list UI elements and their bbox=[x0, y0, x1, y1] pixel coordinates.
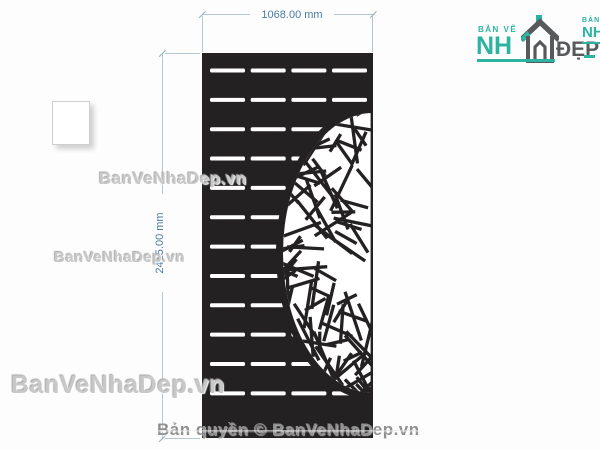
gate-panel-drawing bbox=[202, 53, 373, 438]
copyright-watermark: Bản quyền © BanVeNhaDep.vn bbox=[157, 420, 420, 440]
logo-main-text: NH bbox=[582, 24, 600, 41]
left-dimension-extension-top bbox=[165, 53, 200, 54]
logo-underline bbox=[584, 55, 595, 58]
drawing-preview-page: 1068.00 mm 2415.00 mm BanVeNhaDep.vn Ban… bbox=[0, 0, 600, 450]
height-dimension-label: 2415.00 mm bbox=[153, 194, 167, 292]
house-icon bbox=[521, 14, 559, 64]
logo-underline bbox=[582, 42, 600, 44]
top-dimension-extension-right bbox=[372, 16, 373, 52]
banvenhadep-logo-partial: BẢN V NH bbox=[582, 17, 600, 47]
watermark: BanVeNhaDep.vn bbox=[54, 249, 185, 266]
logo-small-text: BẢN V bbox=[582, 17, 600, 24]
watermark: BanVeNhaDep.vn bbox=[99, 169, 247, 189]
logo-main-left-text: NH bbox=[476, 32, 512, 61]
banvenhadep-logo: BẢN VẼ NH ĐẸP bbox=[475, 14, 597, 66]
top-dimension-extension-left bbox=[202, 16, 203, 52]
dimension-tick bbox=[370, 11, 377, 18]
logo-underline bbox=[477, 59, 555, 62]
width-dimension-label: 1068.00 mm bbox=[250, 8, 334, 22]
sheet-thumbnail-icon bbox=[52, 101, 90, 145]
watermark: BanVeNhaDep.vn bbox=[11, 371, 225, 400]
